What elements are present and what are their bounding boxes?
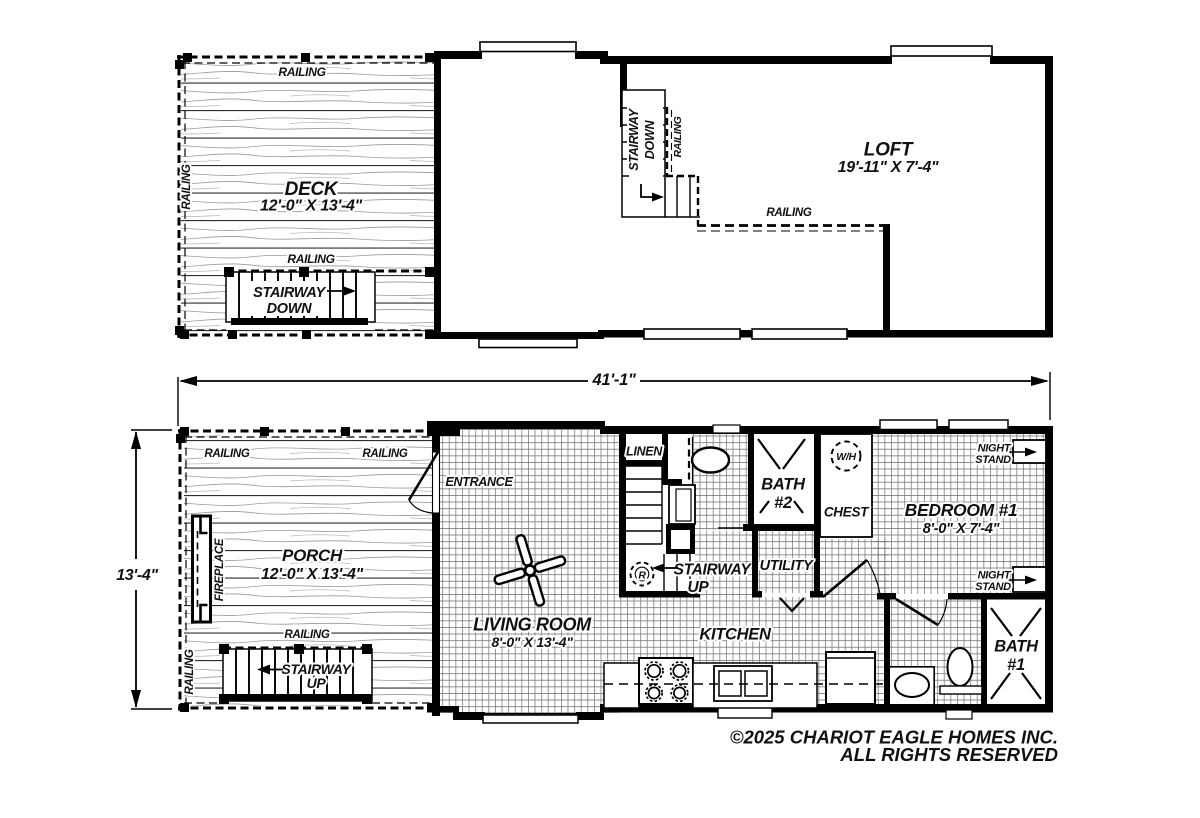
svg-text:RAILING: RAILING: [184, 649, 196, 695]
svg-text:DOWN: DOWN: [267, 301, 313, 317]
svg-text:LINEN: LINEN: [626, 445, 663, 459]
svg-text:RAILING: RAILING: [362, 448, 408, 460]
svg-text:R: R: [638, 570, 646, 582]
svg-text:RAILING: RAILING: [204, 448, 250, 460]
svg-text:RAILING: RAILING: [672, 116, 684, 157]
svg-text:RAILING: RAILING: [287, 252, 334, 266]
svg-text:RAILING: RAILING: [278, 65, 325, 79]
svg-text:12'-0" X 13'-4": 12'-0" X 13'-4": [261, 566, 364, 583]
svg-text:BEDROOM #1: BEDROOM #1: [905, 500, 1018, 520]
svg-text:UTILITY: UTILITY: [760, 558, 814, 574]
svg-text:RAILING: RAILING: [181, 164, 193, 210]
svg-text:RAILING: RAILING: [284, 629, 330, 641]
svg-text:FIREPLACE: FIREPLACE: [214, 538, 226, 601]
svg-text:STAND: STAND: [975, 454, 1011, 466]
svg-text:LOFT: LOFT: [864, 140, 914, 161]
svg-text:CHEST: CHEST: [824, 505, 870, 520]
svg-text:12'-0" X 13'-4": 12'-0" X 13'-4": [260, 198, 363, 215]
svg-text:8'-0" X 13'-4": 8'-0" X 13'-4": [491, 634, 573, 650]
svg-text:DOWN: DOWN: [643, 120, 657, 160]
svg-text:41'-1": 41'-1": [592, 371, 636, 389]
svg-text:STAIRWAY: STAIRWAY: [253, 285, 326, 301]
svg-text:STAIRWAY: STAIRWAY: [674, 562, 753, 579]
svg-text:NIGHT: NIGHT: [978, 443, 1012, 455]
svg-text:BATH: BATH: [994, 638, 1039, 656]
svg-text:#1: #1: [1007, 656, 1025, 674]
svg-text:RAILING: RAILING: [766, 207, 812, 219]
svg-text:ALL RIGHTS RESERVED: ALL RIGHTS RESERVED: [839, 744, 1058, 765]
svg-text:13'-4": 13'-4": [116, 567, 158, 584]
svg-text:8'-0" X 7'-4": 8'-0" X 7'-4": [923, 521, 1001, 537]
svg-text:KITCHEN: KITCHEN: [699, 626, 772, 644]
svg-text:LIVING ROOM: LIVING ROOM: [473, 615, 592, 635]
svg-text:UP: UP: [307, 675, 327, 691]
svg-text:UP: UP: [688, 579, 710, 596]
svg-text:STAIRWAY: STAIRWAY: [627, 107, 641, 170]
svg-text:BATH: BATH: [761, 476, 806, 494]
svg-text:19'-11" X 7'-4": 19'-11" X 7'-4": [838, 159, 939, 176]
svg-text:PORCH: PORCH: [282, 546, 343, 565]
svg-text:W/H: W/H: [836, 451, 856, 463]
svg-text:STAND: STAND: [975, 581, 1011, 593]
svg-text:NIGHT: NIGHT: [978, 570, 1012, 582]
svg-text:ENTRANCE: ENTRANCE: [445, 475, 513, 489]
svg-text:#2: #2: [774, 494, 792, 512]
